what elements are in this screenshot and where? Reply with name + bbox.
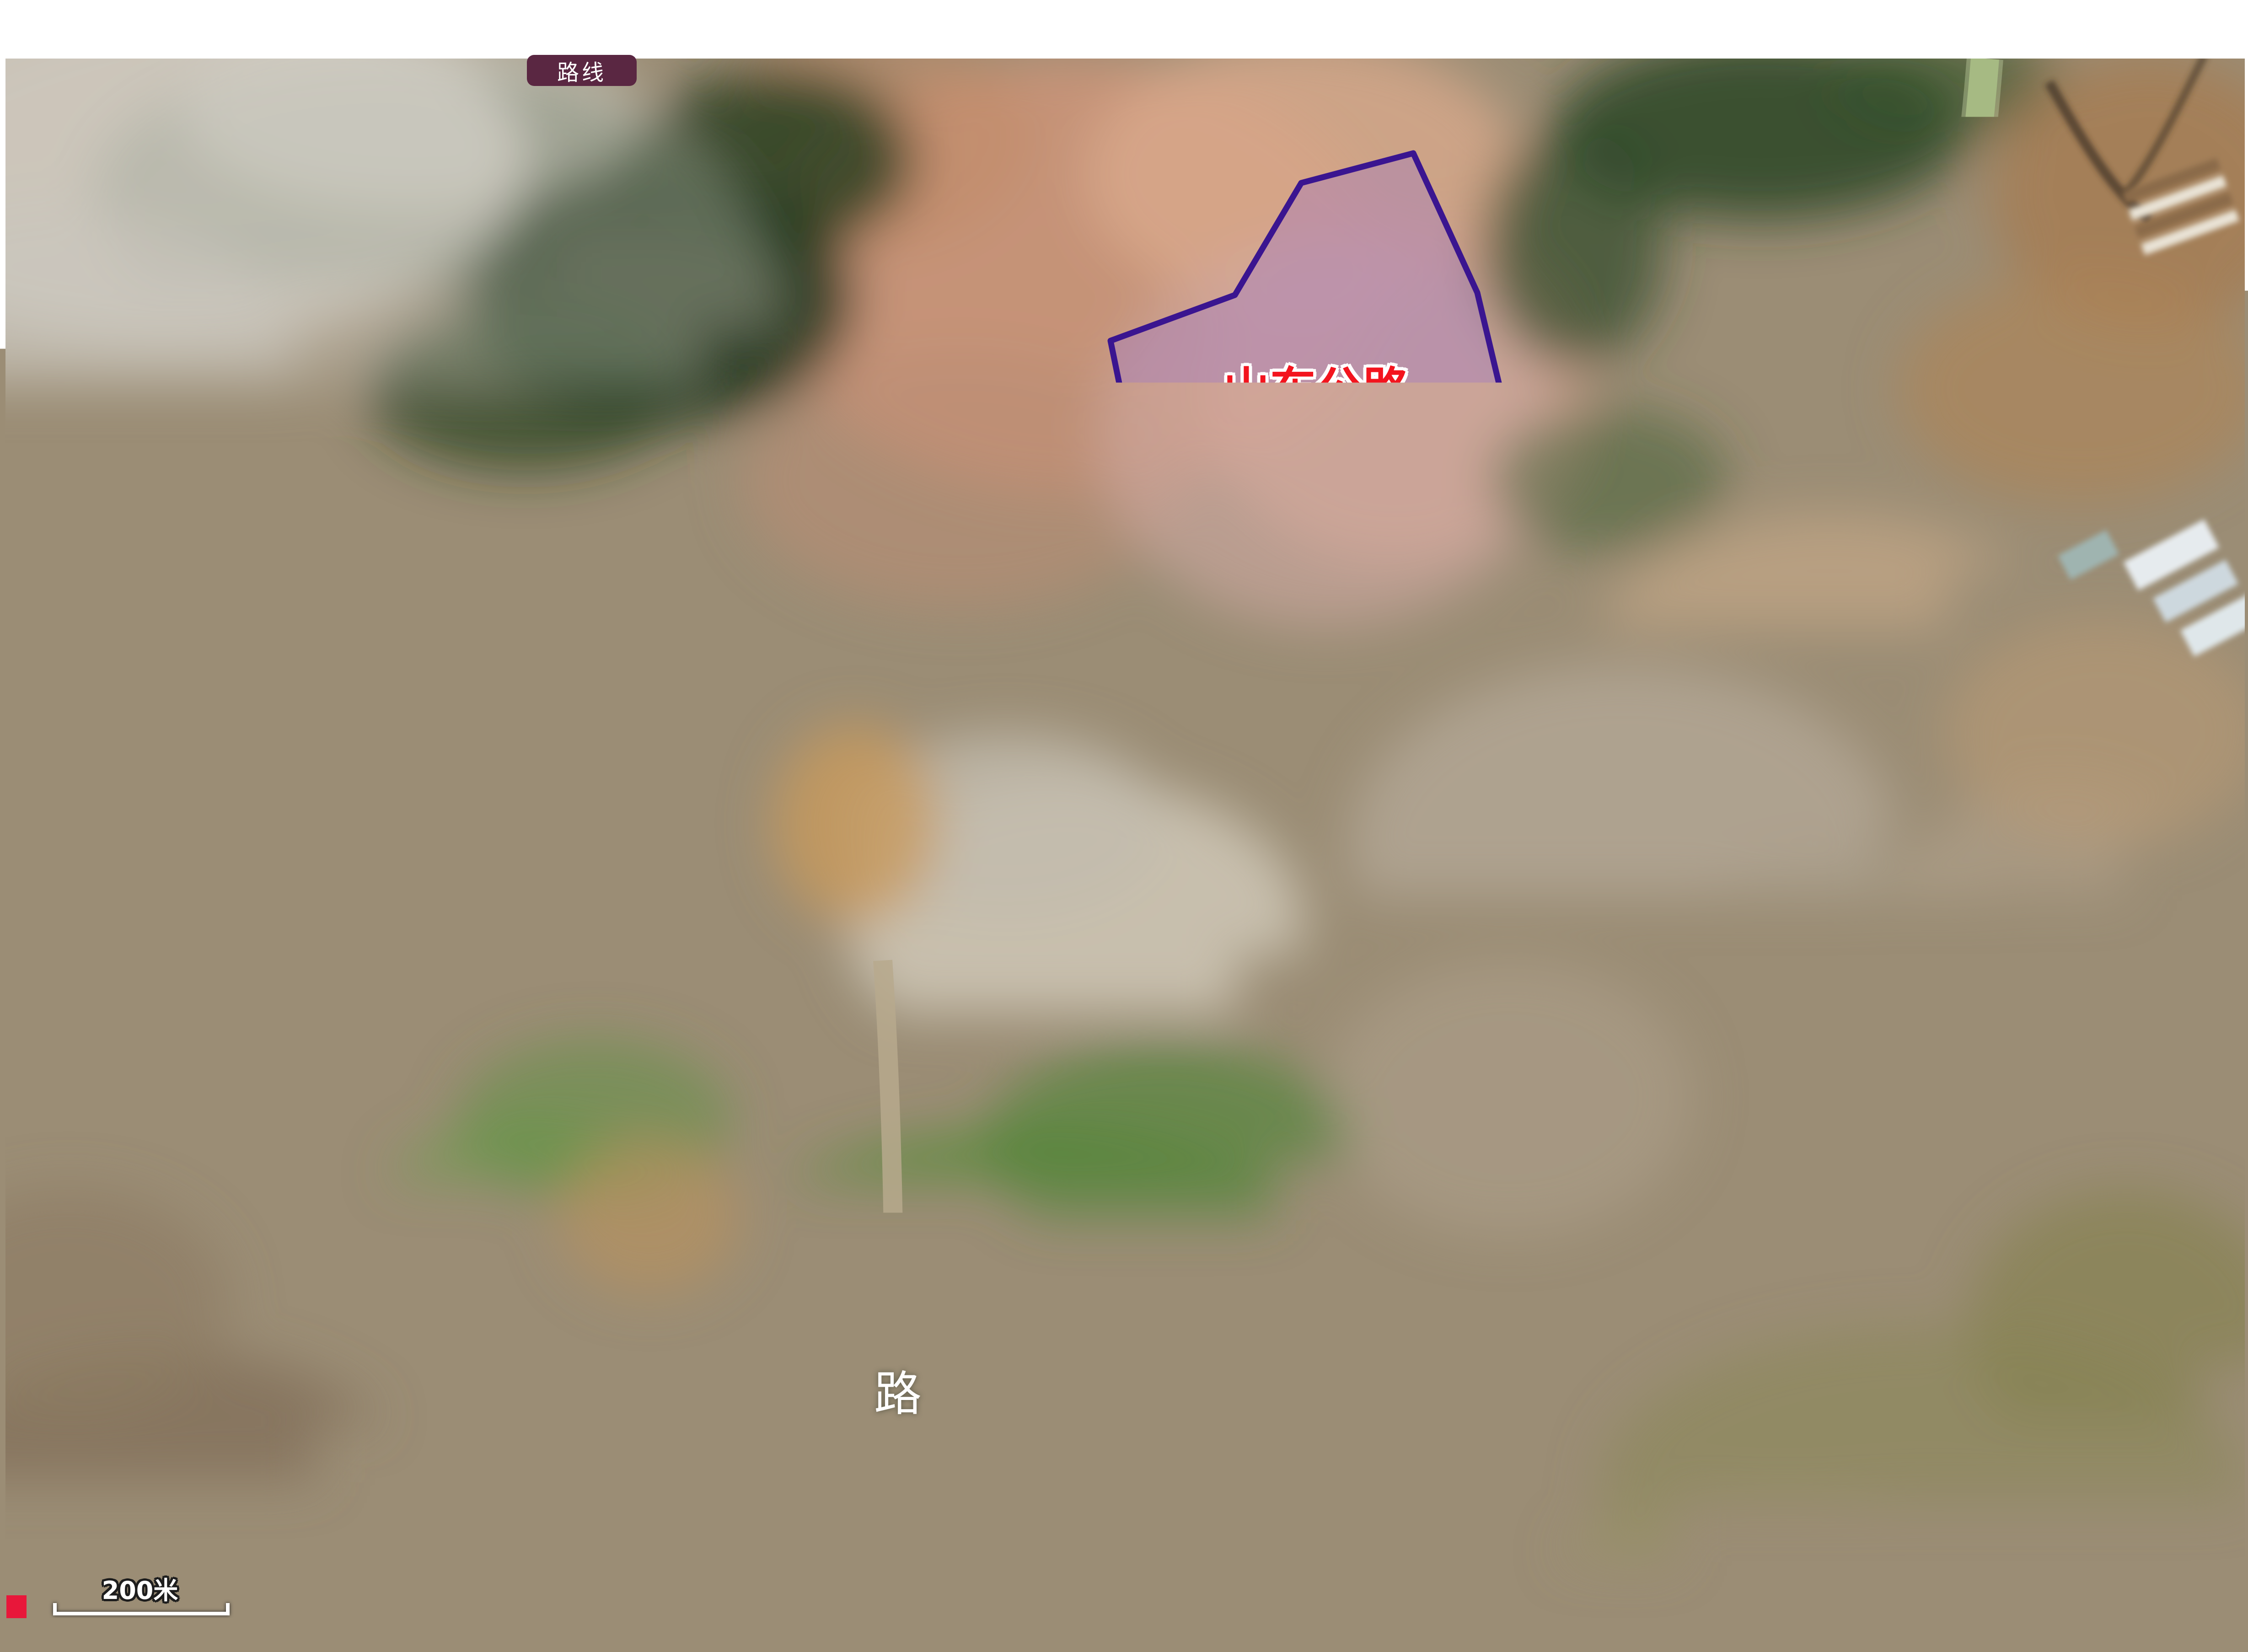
scale-label: 200米	[102, 1578, 178, 1603]
screenshot-stage: 路线 山东公路 技师学院 山东新航实验 外国语学校 历城区公路管理局 彩石公路管…	[0, 0, 2248, 1652]
cailong-road-label-char3: 路	[874, 1355, 922, 1424]
xinhang-school-label-line2: 外国语学校	[65, 748, 294, 794]
route-button-label: 路线	[557, 54, 606, 86]
jishi-college-label-line2: 技师学院	[1223, 449, 1410, 495]
satellite-imagery	[0, 0, 2248, 1652]
medical-platform-label: 医疗器械创新和监管服务大平台	[113, 1334, 753, 1379]
satellite-map[interactable]	[0, 0, 2248, 1652]
map-marker-icon	[6, 1595, 27, 1621]
route-button[interactable]: 路线	[527, 55, 637, 86]
cailong-road-label-char1: 彩	[881, 1211, 928, 1280]
food-drug-platform-label: 食品药品创新和监管服务大平台	[1154, 1330, 1769, 1374]
road-bureau-label-line1: 历城区公路管理局	[620, 706, 979, 751]
jishi-college-label-line1: 山东公路	[1223, 366, 1410, 413]
xinhang-school-label-line1: 山东新航实验	[65, 684, 339, 730]
qinghe-tomb-label: 清河太夫人墓	[430, 1174, 721, 1223]
cailong-road-label-char2: 龙	[878, 1283, 925, 1352]
